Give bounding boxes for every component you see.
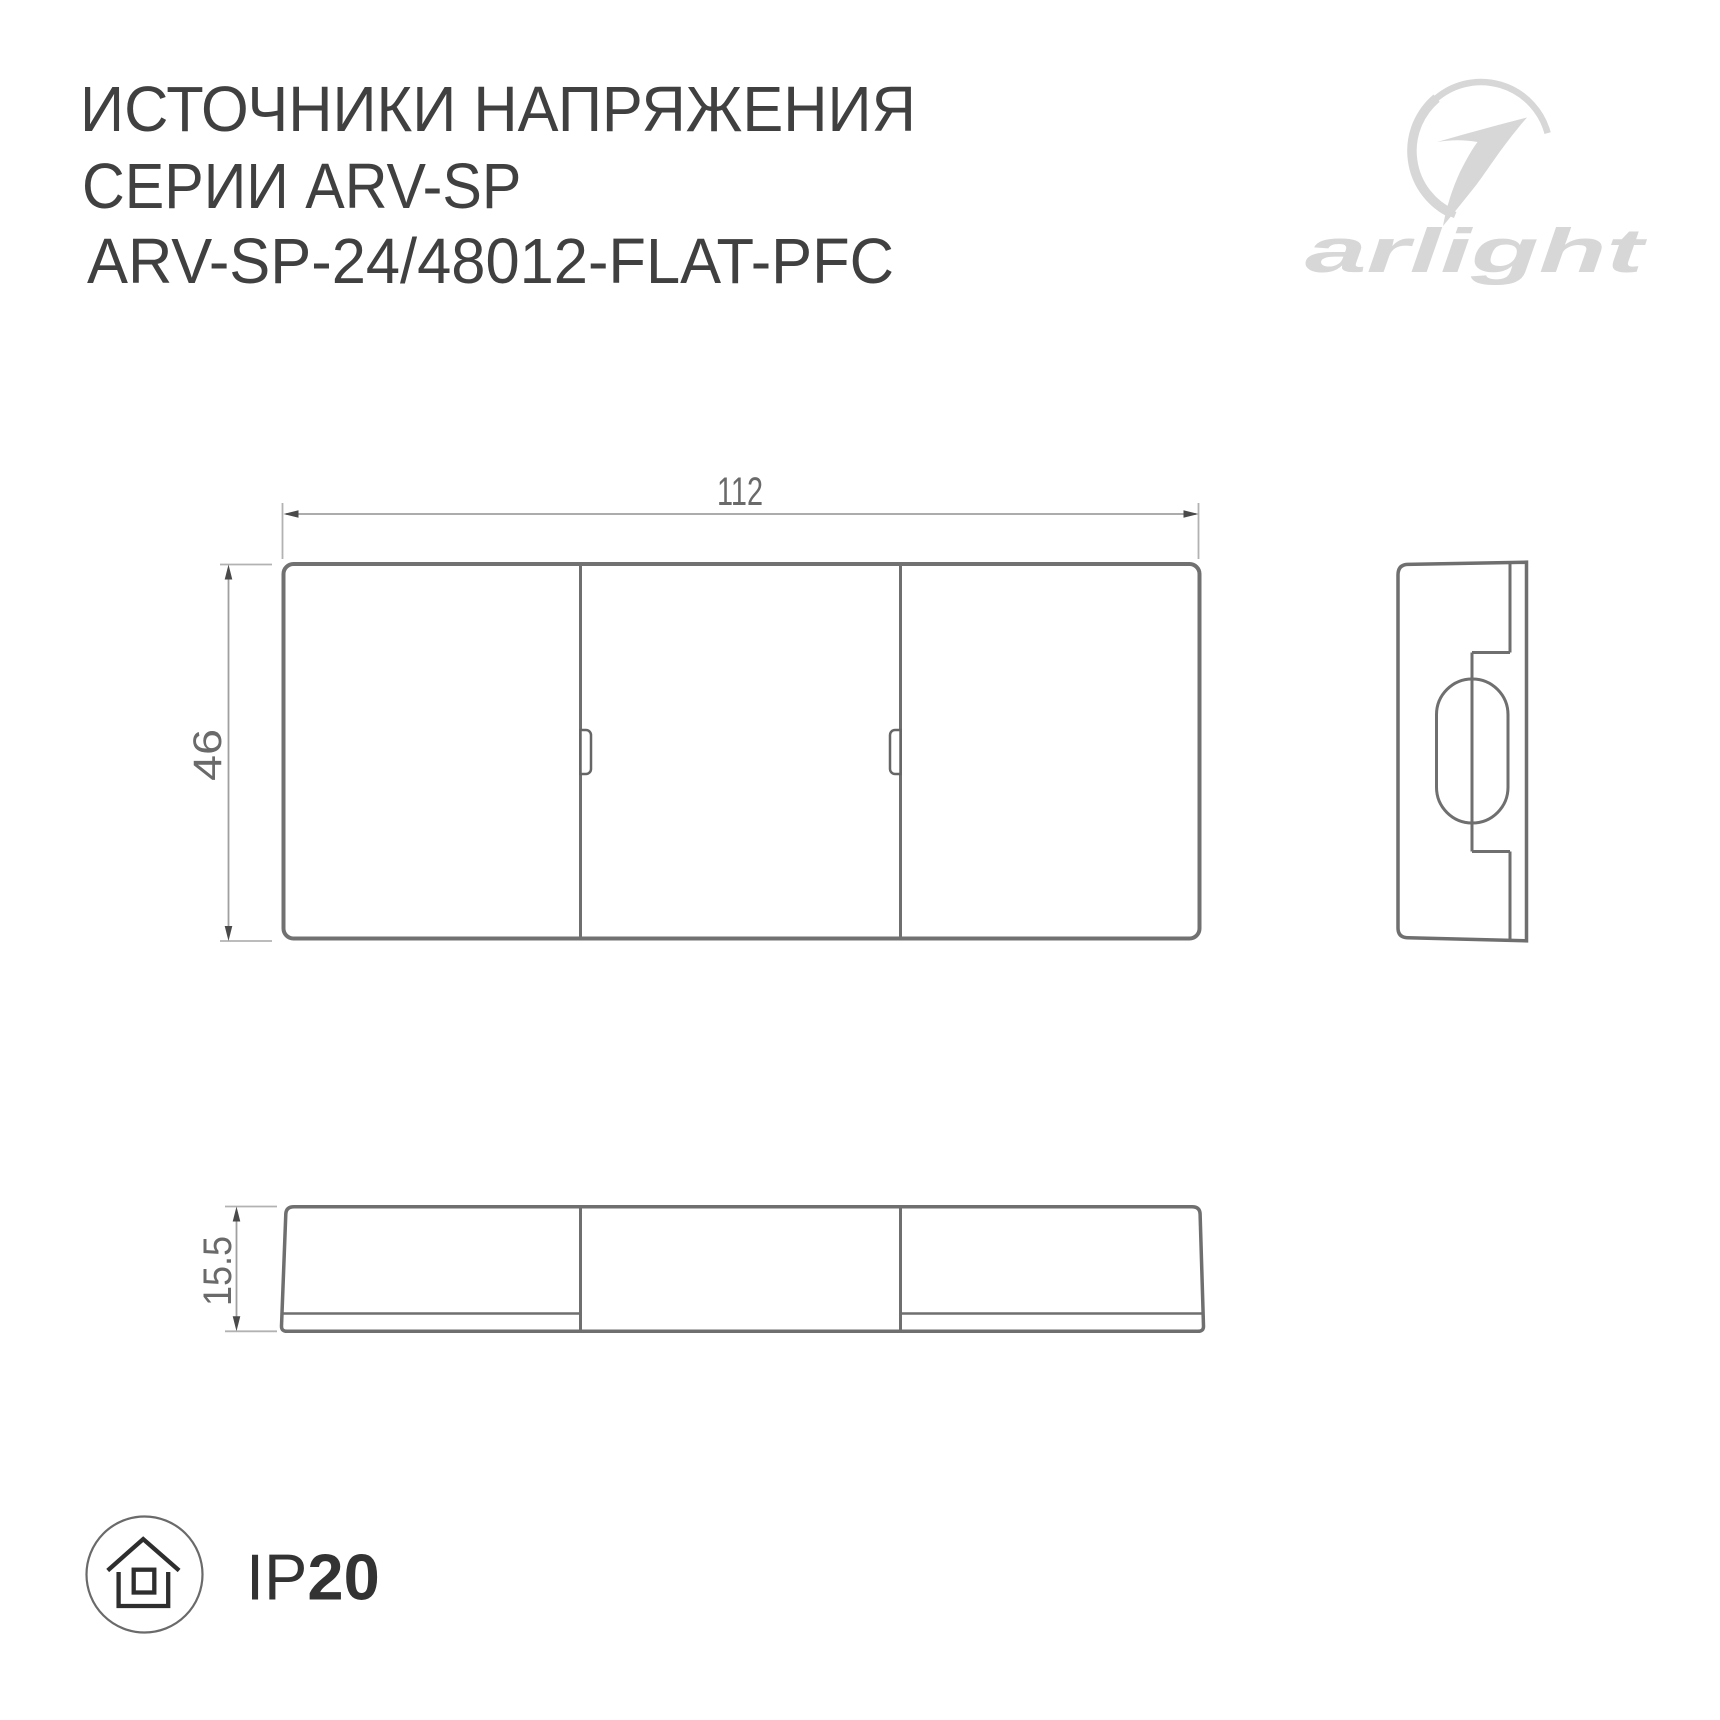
svg-text:112: 112 bbox=[717, 470, 763, 514]
svg-text:46: 46 bbox=[186, 729, 230, 781]
svg-text:IP20: IP20 bbox=[246, 1541, 380, 1614]
svg-text:15.5: 15.5 bbox=[196, 1236, 240, 1306]
svg-text:arlight: arlight bbox=[1305, 217, 1647, 286]
